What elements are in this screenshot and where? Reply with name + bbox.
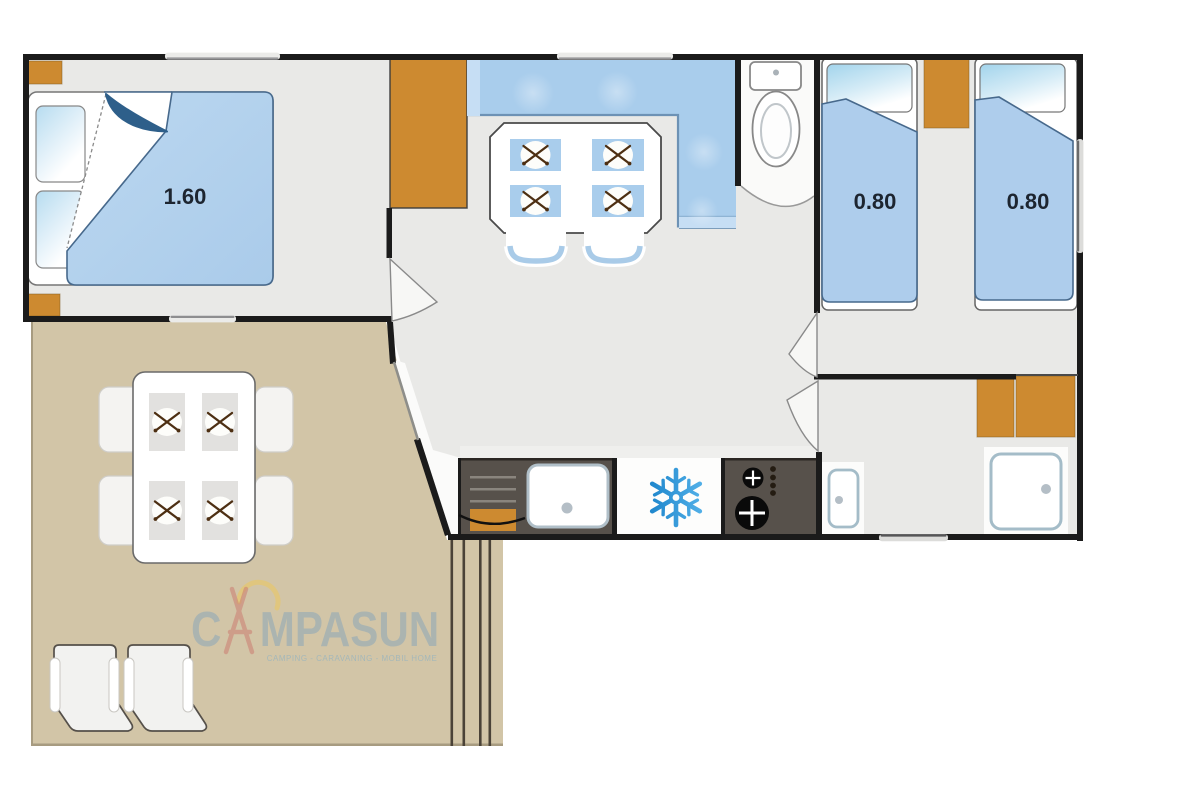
svg-text:0.80: 0.80 [854,189,897,214]
svg-text:0.80: 0.80 [1007,189,1050,214]
svg-text:CAMPING - CARAVANING - MOB: CAMPING - CARAVANING - MOBIL HOME [267,654,438,663]
svg-text:1.60: 1.60 [164,184,207,209]
